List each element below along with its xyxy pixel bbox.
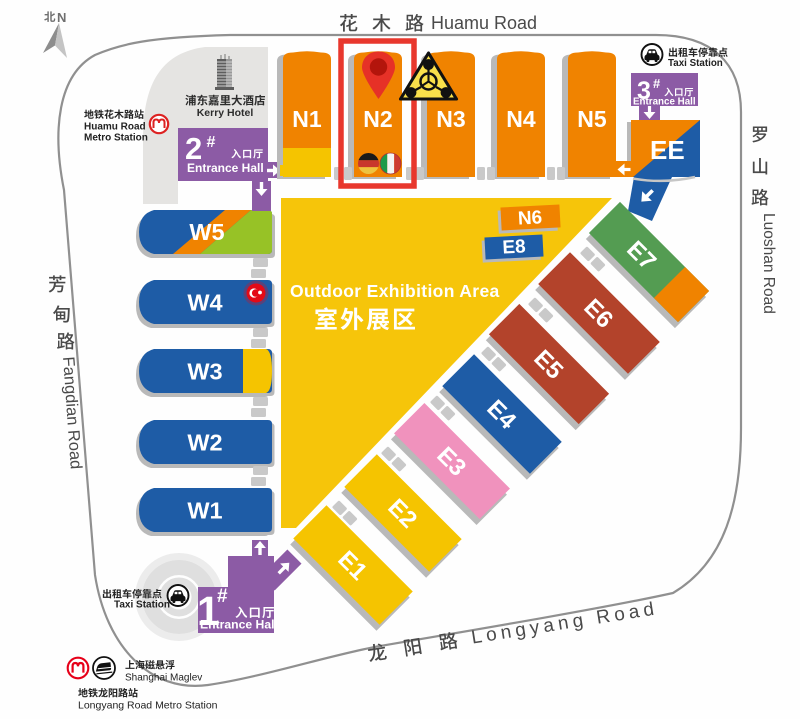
svg-text:Taxi Station: Taxi Station [668, 58, 723, 69]
svg-text:Kerry Hotel: Kerry Hotel [197, 107, 254, 119]
svg-text:Entrance Hall: Entrance Hall [200, 618, 278, 632]
svg-text:EE: EE [650, 135, 685, 165]
svg-text:E8: E8 [502, 236, 526, 258]
svg-text:N2: N2 [363, 106, 392, 132]
svg-text:Shanghai Maglev: Shanghai Maglev [125, 673, 202, 684]
svg-text:Entrance Hall: Entrance Hall [187, 161, 264, 175]
svg-text:N1: N1 [292, 106, 322, 132]
svg-text:N6: N6 [517, 207, 542, 229]
svg-text:Huamu Road: Huamu Road [431, 13, 537, 33]
svg-text:Metro Station: Metro Station [84, 133, 148, 144]
svg-text:N4: N4 [506, 106, 536, 132]
svg-text:N: N [57, 10, 66, 25]
svg-text:W4: W4 [187, 290, 222, 316]
svg-text:Huamu Road: Huamu Road [84, 122, 146, 133]
svg-text:Entrance Hall: Entrance Hall [633, 97, 696, 108]
svg-text:#: # [207, 134, 216, 151]
svg-text:Taxi Station: Taxi Station [114, 600, 170, 611]
svg-text:#: # [653, 76, 661, 91]
svg-text:Outdoor Exhibition Area: Outdoor Exhibition Area [290, 281, 500, 301]
svg-text:W5: W5 [189, 219, 224, 245]
svg-text:W3: W3 [187, 359, 222, 385]
svg-text:W1: W1 [187, 498, 222, 524]
svg-text:Longyang Road Metro Station: Longyang Road Metro Station [78, 700, 218, 712]
svg-text:N3: N3 [436, 106, 465, 132]
svg-text:Luoshan Road: Luoshan Road [760, 213, 777, 314]
svg-text:N5: N5 [577, 106, 607, 132]
svg-text:W2: W2 [187, 430, 222, 456]
svg-text:#: # [217, 586, 228, 607]
